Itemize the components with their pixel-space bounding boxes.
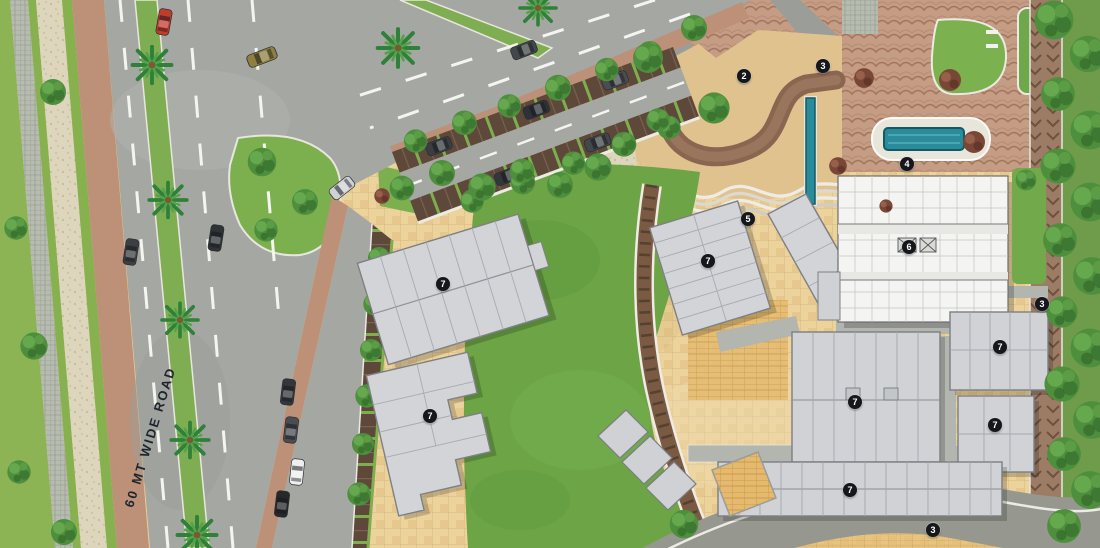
site-key-marker: 7 [701,254,715,268]
site-key-marker: 4 [900,157,914,171]
site-key-marker: 5 [741,212,755,226]
site-key-marker: 3 [1035,297,1049,311]
site-key-marker: 7 [993,340,1007,354]
site-plan: 60 MT WIDE ROAD 23456777777733 [0,0,1100,548]
site-key-marker: 7 [423,409,437,423]
site-key-marker: 7 [843,483,857,497]
site-key-marker: 7 [436,277,450,291]
site-key-marker: 7 [848,395,862,409]
building-east-a [792,332,945,463]
site-key-marker: 6 [902,240,916,254]
site-key-marker: 2 [737,69,751,83]
site-plan-illustration [0,0,1100,548]
site-key-marker: 3 [816,59,830,73]
site-key-marker: 3 [926,523,940,537]
site-key-marker: 7 [988,418,1002,432]
building-tower [818,168,1046,328]
